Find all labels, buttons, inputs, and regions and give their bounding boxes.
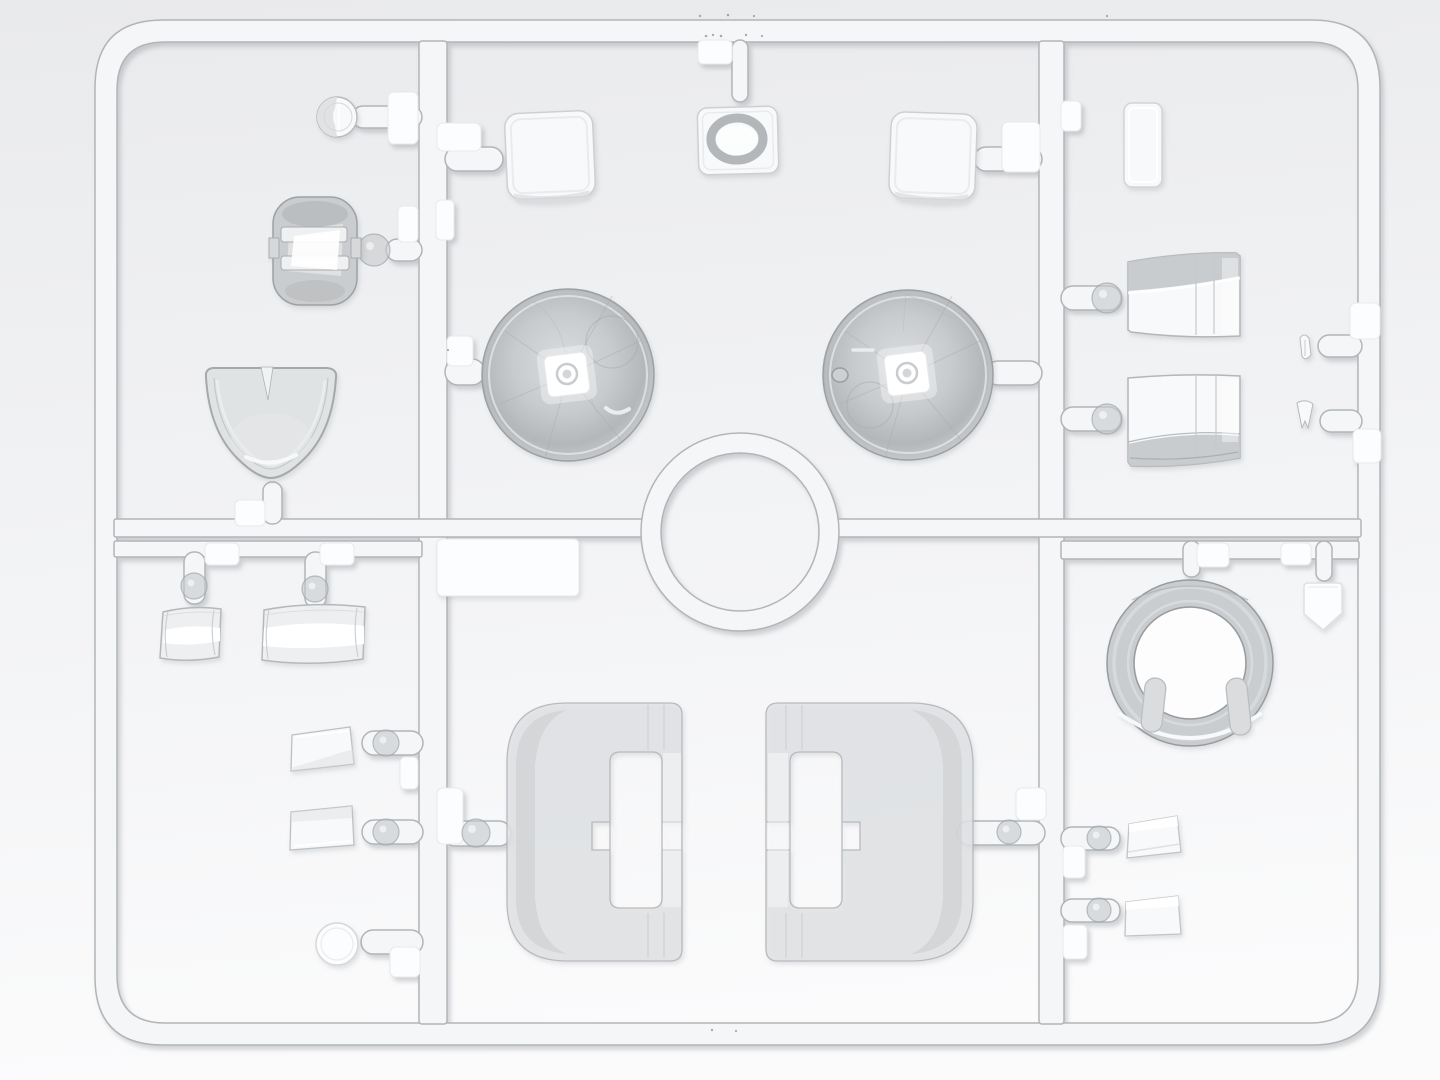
part-periscope-lens-block bbox=[269, 197, 361, 305]
gate-ball bbox=[1087, 826, 1111, 850]
part-turret-ring bbox=[1107, 580, 1273, 746]
runner-horizontal-right bbox=[835, 519, 1361, 537]
part-flat-plate bbox=[437, 539, 579, 596]
part-wedge-lamp-right-2 bbox=[1125, 896, 1181, 936]
gate-ball bbox=[181, 573, 207, 599]
part-hatch-square-left bbox=[504, 110, 596, 205]
stub-windscreen bbox=[263, 482, 282, 524]
part-vision-block-lower bbox=[1128, 375, 1240, 466]
gate-ball bbox=[462, 819, 490, 847]
runner-horizontal-left bbox=[114, 519, 645, 537]
part-small-rect-window bbox=[1124, 103, 1162, 187]
part-wedge-lamp-1 bbox=[291, 727, 354, 771]
part-dome-lens-right bbox=[823, 290, 993, 460]
gate-ball bbox=[358, 234, 390, 266]
stub-tooth-2 bbox=[1320, 410, 1362, 432]
stub-top-center bbox=[732, 40, 748, 102]
gate-ball bbox=[302, 576, 328, 602]
gate-ball bbox=[997, 820, 1021, 844]
part-vision-block-upper bbox=[1128, 253, 1240, 337]
part-tooth-1 bbox=[1300, 335, 1311, 359]
render-canvas bbox=[0, 0, 1440, 1080]
gate-ball bbox=[1087, 898, 1111, 922]
gate-ball bbox=[373, 819, 399, 845]
gate-ball bbox=[373, 730, 399, 756]
companion-bar-left bbox=[114, 541, 422, 557]
part-hatch-square-right bbox=[888, 112, 977, 206]
part-ring-insert-square bbox=[697, 106, 779, 175]
part-wedge-lamp-2 bbox=[290, 806, 354, 850]
part-dome-lens-left bbox=[482, 289, 654, 461]
part-small-round-lens bbox=[317, 97, 357, 137]
gate-ball bbox=[1092, 283, 1122, 313]
gate-ball bbox=[1092, 404, 1122, 434]
part-curved-glass-small bbox=[160, 608, 221, 661]
part-curved-glass-large bbox=[262, 605, 365, 664]
part-round-lamp-lens bbox=[316, 923, 358, 965]
stub-dome-right bbox=[986, 361, 1042, 385]
stub-ring-section-2 bbox=[1316, 541, 1332, 581]
